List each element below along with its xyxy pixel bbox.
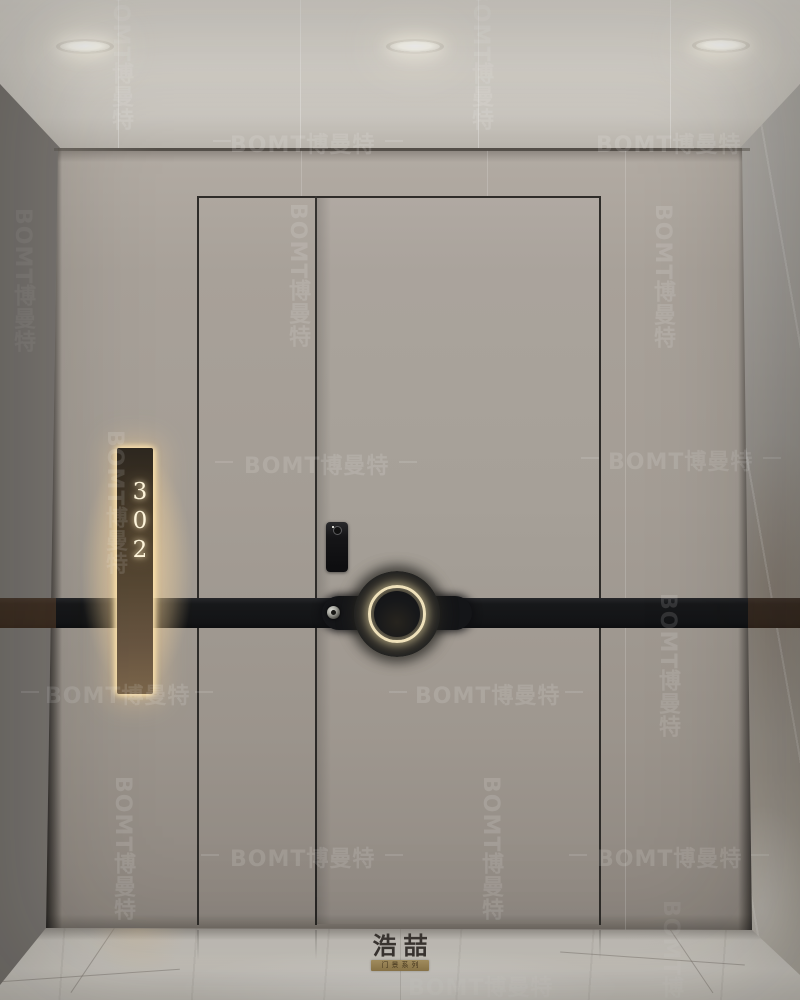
lock-fingerprint-reader [333,526,342,535]
ceiling-wall-junction [54,148,750,151]
keyhole-icon [327,606,340,619]
floor-seam [560,952,745,966]
downlight-icon [56,39,114,54]
floor-reflection [315,930,317,960]
ceiling-seam [478,0,479,150]
downlight-icon [386,39,444,54]
sign-floor-reflection [88,928,188,978]
brand-logo: 浩喆 门景系列 [340,932,460,976]
ceiling-seam [118,0,119,150]
door-handle-center [374,591,420,637]
door-leaf-edge [315,196,317,925]
floor-reflection [197,930,199,960]
smart-lock-keypad-icon [326,522,348,572]
wall-seam [487,150,488,196]
ceiling [0,0,800,156]
ceiling-seam [670,0,671,150]
door-frame-top [197,196,601,198]
brand-name: 浩喆 [340,932,460,960]
door-leaf [317,198,599,924]
ceiling-seam [300,0,301,150]
room-number: 302 [117,462,153,582]
band-segment-left [0,598,56,628]
downlight-icon [692,38,750,53]
room-number-sign: 302 [117,448,153,694]
band-segment-right [748,598,800,628]
entrance-door-photo: 302 浩喆 门景系列 BOMT博曼特BOMT博曼特BOMT博曼特BOMT博曼特… [0,0,800,1000]
door-frame-right [599,196,601,925]
wall-seam [625,150,626,930]
wall-seam [301,150,302,196]
brand-series-label: 门景系列 [371,960,429,971]
floor-reflection [599,930,601,960]
